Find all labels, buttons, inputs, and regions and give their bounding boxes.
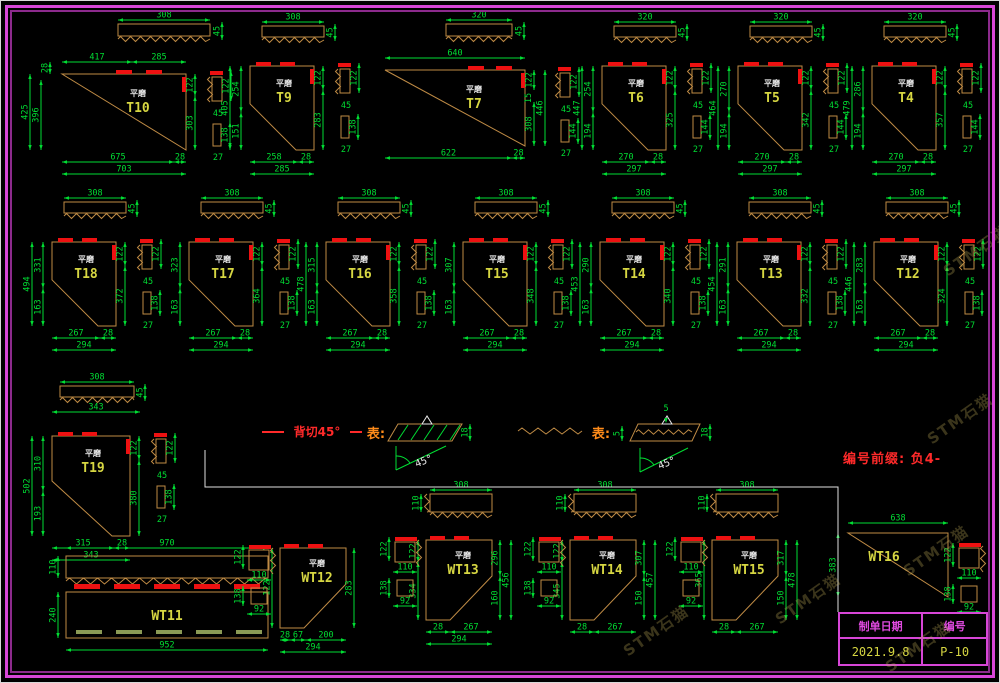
dim-arrow (642, 540, 645, 545)
dim-label: 331 (34, 257, 44, 272)
dim-label: 396 (32, 107, 42, 122)
dim-label: 45 (693, 101, 703, 111)
dim-label: 372 (116, 288, 126, 303)
figure-T12: 30845平磨T12446283163122324267282941224513… (845, 189, 985, 352)
dim-arrow (844, 135, 847, 140)
edge-finish-cap (768, 62, 783, 66)
dim-arrow (543, 70, 546, 75)
edge-finish-cap (767, 238, 782, 242)
dim-arrow (671, 20, 676, 23)
edge-finish-cap (878, 62, 893, 66)
zigzag-edge (446, 37, 512, 42)
dim-arrow (614, 20, 619, 23)
dim-label: 45 (814, 27, 824, 37)
dim-arrow (943, 196, 948, 199)
dim-arrow (537, 604, 542, 607)
dim-label: 92 (254, 605, 264, 615)
edge-finish-cap (469, 238, 484, 242)
dim-arrow (181, 172, 186, 175)
outline (156, 439, 166, 463)
dim-arrow (951, 543, 954, 548)
dim-arrow (193, 96, 196, 101)
dim-label: 297 (896, 165, 911, 175)
dim-label: 110 (556, 495, 566, 510)
dim-label: 163 (445, 299, 455, 314)
dim-arrow (412, 604, 417, 607)
dim-label: 45 (539, 203, 549, 213)
dim-label: 122 (409, 543, 419, 558)
dim-label: 163 (34, 299, 44, 314)
dim-arrow (397, 321, 400, 326)
dim-arrow (357, 63, 360, 68)
dim-label: 267 (890, 329, 905, 339)
dim-arrow (397, 242, 400, 247)
edge-finish-cap (716, 536, 731, 540)
line (437, 425, 447, 440)
dim-arrow (450, 630, 455, 633)
bottom-dash (236, 630, 262, 634)
dim-label: 45 (963, 101, 973, 111)
dim-arrow (181, 60, 186, 63)
figure-label: WT14 (591, 563, 622, 578)
dim-arrow (702, 615, 705, 620)
outline (962, 69, 972, 93)
dim-arrow (980, 311, 983, 316)
dim-label: 294 (305, 643, 320, 653)
dim-arrow (159, 239, 162, 244)
dim-arrow (137, 460, 140, 465)
dim-arrow (645, 160, 650, 163)
dim-arrow (577, 67, 580, 72)
zigzag-edge (118, 37, 210, 42)
dim-arrow (189, 348, 194, 351)
dim-arrow (315, 288, 318, 293)
outline (964, 245, 974, 269)
dim-label: 92 (400, 597, 410, 607)
zigzag-edge (262, 38, 324, 43)
dim-label: 110 (541, 563, 556, 573)
dim-label: 122 (426, 246, 436, 261)
dim-arrow (594, 630, 599, 633)
dim-arrow (863, 283, 866, 288)
figure-label: T13 (759, 267, 782, 282)
figure-WT13: 308110平磨WT131223342961604562826729412211… (380, 481, 513, 646)
edge-finish-cap (116, 70, 132, 74)
dim-arrow (574, 488, 579, 491)
line (424, 425, 434, 440)
outline (212, 77, 222, 101)
dim-label: 417 (89, 53, 104, 63)
dim-arrow (430, 488, 435, 491)
outline (886, 202, 948, 213)
dim-arrow (534, 321, 537, 326)
dim-label: 446 (845, 276, 855, 291)
dim-arrow (30, 242, 33, 247)
figure-T7: 32045平磨T764012215308446622281224514427 (385, 11, 581, 160)
dim-label: 122 (152, 246, 162, 261)
edge-finish-cap (74, 584, 100, 589)
dim-label: 453 (571, 276, 581, 291)
dim-arrow (589, 630, 594, 633)
zigzag-edge (425, 494, 430, 512)
line (450, 425, 460, 440)
dim-arrow (52, 348, 57, 351)
dim-arrow (260, 321, 263, 326)
dim-label: 45 (326, 27, 336, 37)
dim-label: 28 (788, 329, 798, 339)
zigzag-edge (64, 214, 126, 219)
dim-arrow (393, 604, 398, 607)
edge-finish-cap (194, 584, 220, 589)
dim-label: 380 (130, 490, 140, 505)
dim-label: 502 (23, 478, 33, 493)
dim-arrow (591, 112, 594, 117)
finish-label: 平磨 (85, 448, 101, 458)
dim-label: 27 (561, 149, 571, 159)
dim-label: 254 (584, 81, 594, 96)
dim-label: 45 (280, 277, 290, 287)
dim-label: 383 (829, 557, 839, 572)
dim-arrow (304, 321, 307, 326)
dim-arrow (416, 615, 419, 620)
dim-label: 122 (936, 70, 946, 85)
line (411, 425, 421, 440)
zigzag-edge (749, 214, 811, 219)
dim-arrow (738, 160, 743, 163)
dim-arrow (664, 418, 667, 423)
edge-finish-cap (338, 63, 351, 67)
dim-arrow (52, 336, 57, 339)
dim-arrow (569, 311, 572, 316)
number-prefix-note: 编号前缀: 负4- (843, 448, 993, 467)
dim-arrow (727, 145, 730, 150)
dim-arrow (806, 196, 811, 199)
dim-label: 122 (972, 70, 982, 85)
dim-label: 18 (461, 427, 471, 437)
dim-arrow (41, 531, 44, 536)
dim-label: 307 (445, 257, 455, 272)
dim-arrow (356, 114, 359, 119)
dim-arrow (809, 90, 812, 95)
finish-label: 平磨 (900, 254, 916, 264)
bottom-dash (196, 630, 222, 634)
dim-arrow (352, 548, 355, 553)
dim-arrow (796, 348, 801, 351)
edge-finish-cap (82, 432, 97, 436)
dim-arrow (589, 283, 592, 288)
dim-arrow (326, 348, 331, 351)
dim-arrow (673, 66, 676, 71)
dim-arrow (135, 410, 140, 413)
dim-label: 308 (89, 373, 104, 383)
dim-label: 138 (288, 295, 298, 310)
outline (262, 26, 324, 37)
dim-label: 122 (563, 246, 573, 261)
edge-finish-cap (606, 238, 621, 242)
dim-label: 92 (686, 597, 696, 607)
dim-label: 315 (75, 539, 90, 549)
dim-label: 122 (702, 70, 712, 85)
dim-label: 340 (664, 288, 674, 303)
zigzag-edge (614, 38, 676, 43)
dim-arrow (933, 348, 938, 351)
dim-label: 285 (274, 165, 289, 175)
edge-finish-cap (430, 536, 445, 540)
dim-arrow (30, 436, 33, 441)
panel-outline (848, 533, 948, 597)
dim-arrow (39, 80, 42, 85)
figure-label: WT15 (733, 563, 764, 578)
dim-arrow (532, 141, 535, 146)
dim-arrow (979, 88, 982, 93)
dim-label: 270 (618, 153, 633, 163)
dim-arrow (808, 321, 811, 326)
dim-arrow (475, 196, 480, 199)
dim-arrow (463, 336, 468, 339)
figure-WT15: 308110平磨WT153653171504782826712211092 (666, 481, 799, 634)
dim-label: 151 (232, 123, 242, 138)
dim-arrow (620, 426, 623, 431)
dim-arrow (863, 288, 866, 293)
dim-label: 45 (128, 203, 138, 213)
zigzag-edge (886, 214, 948, 219)
dim-arrow (452, 321, 455, 326)
zigzag-edge (66, 578, 268, 584)
dim-arrow (671, 266, 674, 271)
dim-arrow (884, 20, 889, 23)
dim-arrow (580, 66, 583, 71)
dim-arrow (309, 172, 314, 175)
dim-label: 45 (265, 203, 275, 213)
finish-label: 平磨 (352, 254, 368, 264)
dim-label: 494 (23, 276, 33, 291)
dim-label: 267 (205, 329, 220, 339)
outline (884, 26, 946, 37)
figure-T13: 30845平磨T13454291163122332267282941224513… (708, 189, 848, 352)
finish-label: 平磨 (489, 254, 505, 264)
cad-sheet[interactable]: 30845平磨T10417285284253961223036752870312… (0, 0, 1000, 683)
finish-label: 平磨 (599, 550, 615, 560)
edge-finish-cap (280, 62, 295, 66)
dim-label: 308 (156, 11, 171, 21)
dim-arrow (326, 336, 331, 339)
dim-arrow (296, 264, 299, 269)
dim-label: 267 (749, 623, 764, 633)
figure-label: T15 (485, 267, 508, 282)
dim-arrow (239, 107, 242, 112)
dim-arrow (125, 558, 130, 561)
dim-label: 163 (856, 299, 866, 314)
dim-label: 622 (441, 149, 456, 159)
dim-arrow (522, 348, 527, 351)
figure-label: T16 (348, 267, 372, 282)
edge-finish-cap (688, 239, 701, 243)
dim-arrow (39, 145, 42, 150)
outline (430, 494, 492, 512)
dim-arrow (321, 90, 324, 95)
dim-arrow (673, 537, 676, 542)
dim-arrow (943, 90, 946, 95)
dim-arrow (715, 242, 718, 247)
dim-arrow (412, 570, 417, 573)
dim-arrow (532, 196, 537, 199)
dim-arrow (534, 266, 537, 271)
dim-arrow (642, 615, 645, 620)
dim-arrow (943, 521, 948, 524)
outline (828, 69, 838, 93)
dim-arrow (978, 114, 981, 119)
figure-T19: 30845343平磨T19502310193122380315283431224… (23, 373, 177, 562)
dim-arrow (795, 540, 798, 545)
dim-label: 28 (789, 153, 799, 163)
dim-arrow (915, 160, 920, 163)
dim-arrow (395, 196, 400, 199)
figure-WT12: 平磨WT12122283286720029412211013892 (234, 544, 356, 654)
dim-arrow (631, 488, 636, 491)
dim-label: 267 (616, 329, 631, 339)
dim-label: 267 (68, 329, 83, 339)
dim-arrow (795, 615, 798, 620)
finish-label: 平磨 (626, 254, 642, 264)
dim-label: 138 (944, 586, 954, 601)
dim-label: 294 (761, 341, 776, 351)
edge-finish-cap (681, 537, 703, 541)
dim-label: 5 (663, 404, 668, 414)
dim-arrow (978, 135, 981, 140)
dim-arrow (943, 145, 946, 150)
dim-arrow (591, 145, 594, 150)
zigzag-edge (569, 494, 574, 512)
dim-arrow (671, 321, 674, 326)
dim-arrow (66, 648, 71, 651)
dim-label: 308 (498, 189, 513, 199)
dim-label: 638 (890, 514, 905, 524)
legend-rep-label: 表: (366, 426, 385, 442)
dim-label: 45 (678, 27, 688, 37)
figure-WT16: 638383WT1612211013892 (829, 514, 986, 614)
dim-label: 45 (691, 277, 701, 287)
dim-arrow (172, 505, 175, 510)
dim-arrow (487, 642, 492, 645)
dim-label: 122 (837, 246, 847, 261)
edge-finish-cap (210, 71, 223, 75)
dim-arrow (321, 145, 324, 150)
figure-T6: 32045平磨T64472541941223252702829712245144… (573, 13, 713, 176)
dim-arrow (863, 242, 866, 247)
dim-arrow (295, 311, 298, 316)
figure-label: WT16 (868, 550, 899, 565)
angle-arc (640, 458, 654, 465)
dim-label: 456 (502, 572, 512, 587)
outline (338, 202, 400, 213)
edge-finish-cap (277, 239, 290, 243)
outline (827, 245, 837, 269)
drawing-canvas[interactable]: 30845平磨T10417285284253961223036752870312… (0, 0, 1000, 683)
edge-finish-cap (740, 536, 755, 540)
dim-arrow (260, 242, 263, 247)
dim-label: 122 (314, 70, 324, 85)
dim-arrow (669, 196, 674, 199)
edge-finish-cap (904, 238, 919, 242)
dim-label: 5 (613, 431, 623, 436)
dim-arrow (169, 160, 174, 163)
dim-label: 640 (447, 49, 462, 59)
outline (560, 73, 570, 97)
dim-arrow (715, 321, 718, 326)
edge-finish-cap (308, 544, 323, 548)
dim-label: 27 (157, 515, 167, 525)
dim-arrow (338, 196, 343, 199)
dim-arrow (731, 630, 736, 633)
dim-label: 28 (301, 153, 311, 163)
dim-label: 122 (666, 70, 676, 85)
dim-arrow (64, 196, 69, 199)
panel-outline (385, 70, 525, 146)
dim-arrow (129, 380, 134, 383)
dim-arrow (306, 638, 311, 641)
dim-label: 28 (175, 153, 185, 163)
edge-finish-cap (959, 543, 981, 547)
dim-label: 138 (562, 295, 572, 310)
dim-label: 28 (577, 623, 587, 633)
dim-label: 308 (525, 116, 535, 131)
dim-arrow (189, 336, 194, 339)
finish-label: 平磨 (764, 78, 780, 88)
edge-finish-cap (902, 62, 917, 66)
dim-arrow (981, 239, 984, 244)
dim-label: 28 (280, 631, 290, 641)
dim-arrow (121, 196, 126, 199)
dim-arrow (41, 486, 44, 491)
dim-label: 92 (544, 597, 554, 607)
dim-arrow (671, 242, 674, 247)
dim-label: 27 (829, 145, 839, 155)
zigzag-edge (716, 513, 778, 518)
dim-arrow (385, 56, 390, 59)
edge-finish-cap (249, 545, 271, 549)
dim-label: 286 (854, 81, 864, 96)
finish-label: 平磨 (276, 78, 292, 88)
dim-arrow (591, 107, 594, 112)
dim-arrow (863, 321, 866, 326)
dim-arrow (509, 615, 512, 620)
dim-label: 27 (280, 321, 290, 331)
dim-arrow (844, 239, 847, 244)
dim-label: 122 (166, 440, 176, 455)
dim-arrow (293, 160, 298, 163)
dim-arrow (315, 321, 318, 326)
dim-label: 163 (308, 299, 318, 314)
dim-label: 28 (377, 329, 387, 339)
dim-label: 122 (289, 246, 299, 261)
dim-label: 358 (390, 288, 400, 303)
dim-label: 285 (151, 53, 166, 63)
dim-label: 163 (171, 299, 181, 314)
dim-label: 28 (514, 329, 524, 339)
zigzag-edge (518, 428, 582, 434)
dim-arrow (874, 336, 879, 339)
dim-label: 138 (165, 489, 175, 504)
dim-arrow (232, 336, 237, 339)
dim-label: 45 (813, 203, 823, 213)
dim-label: 970 (159, 539, 174, 549)
dim-arrow (631, 630, 636, 633)
dim-label: 150 (635, 590, 645, 605)
dim-label: 464 (709, 100, 719, 115)
outline (475, 202, 537, 213)
dim-arrow (706, 311, 709, 316)
dim-arrow (727, 107, 730, 112)
